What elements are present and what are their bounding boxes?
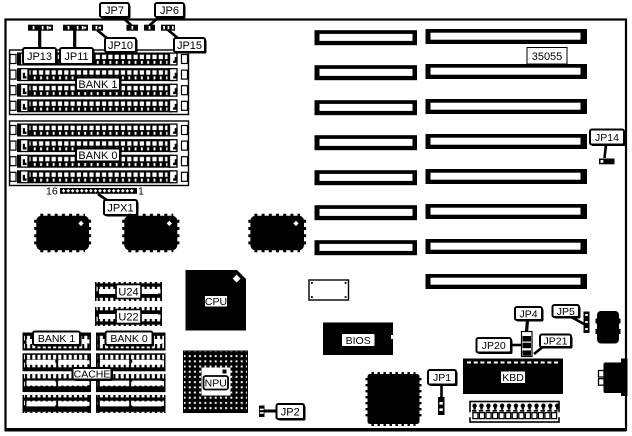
svg-text:JP7: JP7 — [105, 5, 124, 17]
svg-text:JP5: JP5 — [557, 306, 575, 318]
svg-text:JP13: JP13 — [27, 51, 52, 63]
svg-text:JP15: JP15 — [177, 40, 202, 52]
svg-text:U24: U24 — [118, 287, 138, 299]
svg-text:JP1: JP1 — [433, 372, 451, 384]
svg-text:JP2: JP2 — [281, 406, 300, 418]
svg-text:KBD: KBD — [502, 372, 524, 384]
svg-text:JP14: JP14 — [595, 132, 619, 144]
svg-text:JP4: JP4 — [519, 308, 537, 320]
svg-text:JP20: JP20 — [482, 340, 506, 352]
svg-text:1: 1 — [138, 186, 144, 198]
svg-text:JP21: JP21 — [544, 336, 568, 348]
svg-text:JP6: JP6 — [160, 5, 179, 17]
svg-text:JP10: JP10 — [108, 40, 133, 52]
svg-text:BIOS: BIOS — [346, 335, 371, 347]
svg-text:BANK 0: BANK 0 — [78, 150, 117, 162]
svg-text:NPU: NPU — [205, 378, 227, 390]
svg-text:CACHE: CACHE — [74, 369, 111, 381]
svg-text:BANK 0: BANK 0 — [110, 333, 148, 345]
svg-text:JP11: JP11 — [64, 51, 88, 63]
svg-text:U22: U22 — [118, 312, 138, 324]
svg-text:JPX1: JPX1 — [107, 202, 133, 214]
svg-text:16: 16 — [46, 186, 58, 198]
svg-text:CPU: CPU — [205, 296, 227, 308]
svg-text:BANK 1: BANK 1 — [78, 79, 117, 91]
svg-text:BANK 1: BANK 1 — [38, 333, 76, 345]
svg-text:35055: 35055 — [532, 51, 563, 63]
